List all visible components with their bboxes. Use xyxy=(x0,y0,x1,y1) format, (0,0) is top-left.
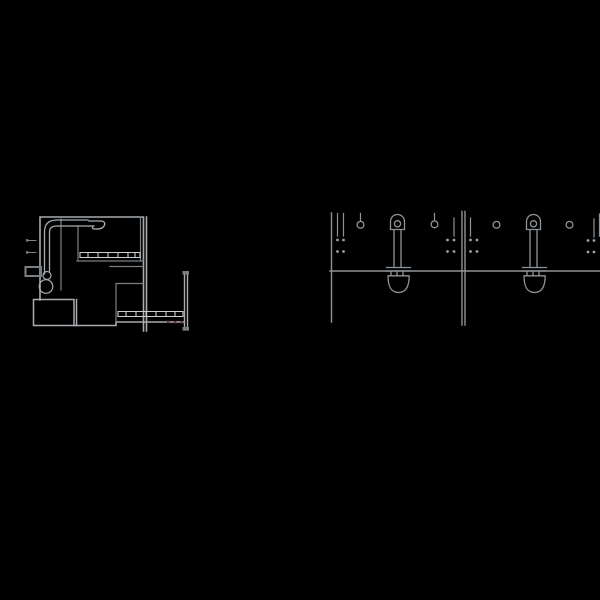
bay2-pendant-bucket-fixture xyxy=(523,215,547,293)
fastener-dot xyxy=(469,250,472,253)
plan-dimension-ticks xyxy=(26,239,36,253)
door-leaf-lines xyxy=(185,272,188,330)
bay1-pendant-bucket-fixture xyxy=(387,215,411,293)
pipe-elbow-lines xyxy=(45,220,95,274)
bay2-fastener-dots xyxy=(469,239,595,254)
curved-hook-detail xyxy=(89,221,105,229)
tick-dots xyxy=(26,239,28,253)
drawing-canvas xyxy=(0,0,600,600)
floor-cabinet-box xyxy=(34,300,77,326)
fastener-dot xyxy=(453,250,456,253)
elevation-walls xyxy=(332,212,466,326)
fastener-dot xyxy=(336,250,339,253)
fastener-dot xyxy=(446,250,449,253)
hanger-ring xyxy=(357,221,364,228)
wall-elevation-drawing[interactable] xyxy=(330,212,600,326)
elevation-bay-2 xyxy=(469,214,599,293)
technical-drawing-svg xyxy=(0,0,600,600)
red-mark xyxy=(167,321,169,323)
fastener-dot xyxy=(587,251,590,254)
hanger-ring xyxy=(566,221,573,228)
fastener-dot xyxy=(476,239,479,242)
plan-upper-shelf-hatched xyxy=(80,253,140,258)
fastener-dot xyxy=(342,239,345,242)
fastener-dot xyxy=(336,239,339,242)
door-cap-bottom xyxy=(183,327,190,331)
fastener-dot xyxy=(446,239,449,242)
tick-dot xyxy=(26,239,28,241)
bay1-fastener-dots xyxy=(336,239,455,253)
fastener-dot xyxy=(453,239,456,242)
plan-lower-shelf-hatched xyxy=(118,312,183,317)
pendant-ring-hole xyxy=(530,221,536,227)
fastener-dot xyxy=(469,239,472,242)
fastener-dot xyxy=(476,250,479,253)
plan-wall-fixtures xyxy=(26,267,53,293)
upper-shelf-band xyxy=(80,253,140,258)
tick-lines xyxy=(27,241,36,253)
plan-pipe-run xyxy=(45,220,105,274)
red-mark xyxy=(181,322,183,324)
red-mark xyxy=(174,322,176,324)
fixture-wall-rect xyxy=(26,267,42,276)
fastener-dot xyxy=(593,239,596,242)
hanger-ring xyxy=(493,221,500,228)
bay1-anchor-lines xyxy=(338,214,455,237)
bay2-anchor-lines xyxy=(471,214,600,237)
floor-plan-drawing[interactable] xyxy=(26,217,190,331)
elevation-bay-1 xyxy=(336,214,455,293)
wall-and-divider-lines xyxy=(332,212,466,326)
hanger-ring xyxy=(431,221,438,228)
fastener-dot xyxy=(342,250,345,253)
door-cap-top xyxy=(183,271,190,275)
tick-dot xyxy=(26,251,28,253)
fixture-ring-circle xyxy=(39,280,53,294)
fastener-dot xyxy=(587,239,590,242)
plan-floor-box xyxy=(34,300,77,326)
pendant-ring-hole xyxy=(394,221,400,227)
fastener-dot xyxy=(593,251,596,254)
fixture-valve-circle xyxy=(43,272,51,280)
lower-shelf-band xyxy=(118,312,183,317)
